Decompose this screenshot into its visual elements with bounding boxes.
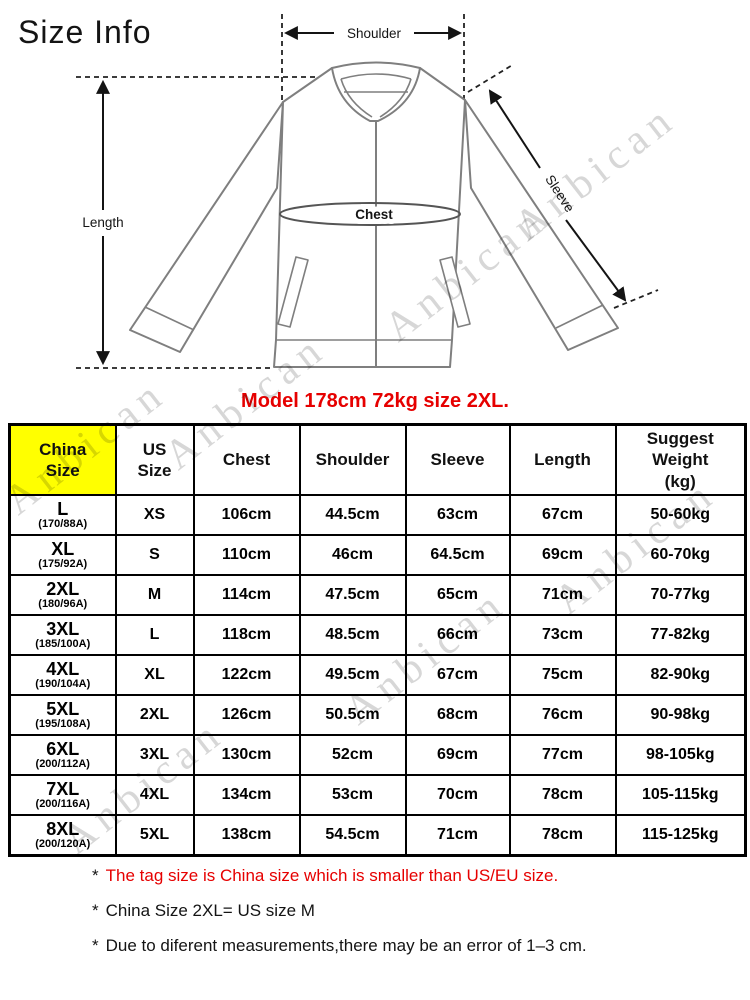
cell-weight: 82-90kg <box>616 655 746 695</box>
cell-weight: 60-70kg <box>616 535 746 575</box>
cell-shoulder: 46cm <box>300 535 406 575</box>
table-row: 6XL(200/112A) 3XL 130cm 52cm 69cm 77cm 9… <box>10 735 746 775</box>
cell-chest: 110cm <box>194 535 300 575</box>
cell-us-size: XS <box>116 495 194 535</box>
footnote-text: The tag size is China size which is smal… <box>106 866 559 885</box>
cell-china-size: 3XL(185/100A) <box>10 615 116 655</box>
size-table: China Size US Size Chest Shoulder Sleeve… <box>8 423 747 857</box>
cell-china-size: 2XL(180/96A) <box>10 575 116 615</box>
table-row: 8XL(200/120A) 5XL 138cm 54.5cm 71cm 78cm… <box>10 815 746 856</box>
footnote-marker: * <box>92 936 99 955</box>
cell-shoulder: 52cm <box>300 735 406 775</box>
china-size-value: 8XL <box>13 820 113 840</box>
footnote-marker: * <box>92 901 99 920</box>
china-size-value: 2XL <box>13 580 113 600</box>
table-row: L(170/88A) XS 106cm 44.5cm 63cm 67cm 50-… <box>10 495 746 535</box>
footnote-size-equivalence: *China Size 2XL= US size M <box>92 901 587 921</box>
cell-sleeve: 67cm <box>406 655 510 695</box>
cell-weight: 115-125kg <box>616 815 746 856</box>
header-chest: Chest <box>194 425 300 496</box>
cell-us-size: M <box>116 575 194 615</box>
cell-shoulder: 50.5cm <box>300 695 406 735</box>
cell-length: 71cm <box>510 575 616 615</box>
cell-sleeve: 68cm <box>406 695 510 735</box>
page-title: Size Info <box>18 14 152 51</box>
cell-sleeve: 64.5cm <box>406 535 510 575</box>
cell-china-size: 8XL(200/120A) <box>10 815 116 856</box>
cell-china-size: L(170/88A) <box>10 495 116 535</box>
header-sleeve: Sleeve <box>406 425 510 496</box>
china-size-value: XL <box>13 540 113 560</box>
china-size-value: 4XL <box>13 660 113 680</box>
cell-chest: 126cm <box>194 695 300 735</box>
china-size-spec: (195/108A) <box>13 718 113 730</box>
cell-sleeve: 66cm <box>406 615 510 655</box>
cell-sleeve: 71cm <box>406 815 510 856</box>
table-row: 7XL(200/116A) 4XL 134cm 53cm 70cm 78cm 1… <box>10 775 746 815</box>
length-measure-label: Length <box>82 215 123 230</box>
header-suggest-weight: Suggest Weight (kg) <box>616 425 746 496</box>
jacket-measurement-diagram: Shoulder Length Sleeve Chest <box>0 0 750 420</box>
cell-weight: 50-60kg <box>616 495 746 535</box>
cell-shoulder: 49.5cm <box>300 655 406 695</box>
cell-length: 76cm <box>510 695 616 735</box>
footnote-tag-size: *The tag size is China size which is sma… <box>92 866 587 886</box>
cell-shoulder: 47.5cm <box>300 575 406 615</box>
sleeve-measure-label: Sleeve <box>542 172 577 215</box>
cell-chest: 130cm <box>194 735 300 775</box>
china-size-value: 5XL <box>13 700 113 720</box>
china-size-spec: (200/112A) <box>13 758 113 770</box>
header-china-size: China Size <box>10 425 116 496</box>
cell-shoulder: 44.5cm <box>300 495 406 535</box>
cell-china-size: 7XL(200/116A) <box>10 775 116 815</box>
footnote-text: China Size 2XL= US size M <box>106 901 315 920</box>
cell-china-size: 6XL(200/112A) <box>10 735 116 775</box>
cell-shoulder: 54.5cm <box>300 815 406 856</box>
china-size-value: L <box>13 500 113 520</box>
header-shoulder: Shoulder <box>300 425 406 496</box>
cell-length: 73cm <box>510 615 616 655</box>
cell-us-size: XL <box>116 655 194 695</box>
cell-us-size: 2XL <box>116 695 194 735</box>
china-size-value: 3XL <box>13 620 113 640</box>
cell-china-size: 4XL(190/104A) <box>10 655 116 695</box>
cell-us-size: 5XL <box>116 815 194 856</box>
footnotes: *The tag size is China size which is sma… <box>92 866 587 956</box>
header-length: Length <box>510 425 616 496</box>
cell-chest: 138cm <box>194 815 300 856</box>
table-row: 2XL(180/96A) M 114cm 47.5cm 65cm 71cm 70… <box>10 575 746 615</box>
header-us-size: US Size <box>116 425 194 496</box>
china-size-spec: (190/104A) <box>13 678 113 690</box>
table-header-row: China Size US Size Chest Shoulder Sleeve… <box>10 425 746 496</box>
cell-us-size: 4XL <box>116 775 194 815</box>
china-size-spec: (175/92A) <box>13 558 113 570</box>
china-size-value: 6XL <box>13 740 113 760</box>
china-size-spec: (200/116A) <box>13 798 113 810</box>
footnote-measurement-error: *Due to diferent measurements,there may … <box>92 936 587 956</box>
cell-weight: 90-98kg <box>616 695 746 735</box>
cell-shoulder: 53cm <box>300 775 406 815</box>
cell-sleeve: 65cm <box>406 575 510 615</box>
table-row: XL(175/92A) S 110cm 46cm 64.5cm 69cm 60-… <box>10 535 746 575</box>
table-row: 5XL(195/108A) 2XL 126cm 50.5cm 68cm 76cm… <box>10 695 746 735</box>
cell-chest: 134cm <box>194 775 300 815</box>
cell-chest: 106cm <box>194 495 300 535</box>
cell-china-size: XL(175/92A) <box>10 535 116 575</box>
cell-chest: 114cm <box>194 575 300 615</box>
cell-length: 75cm <box>510 655 616 695</box>
footnote-text: Due to diferent measurements,there may b… <box>106 936 587 955</box>
shoulder-measure-label: Shoulder <box>347 26 402 41</box>
cell-weight: 98-105kg <box>616 735 746 775</box>
table-row: 4XL(190/104A) XL 122cm 49.5cm 67cm 75cm … <box>10 655 746 695</box>
cell-length: 67cm <box>510 495 616 535</box>
cell-chest: 118cm <box>194 615 300 655</box>
cell-weight: 105-115kg <box>616 775 746 815</box>
model-size-caption: Model 178cm 72kg size 2XL. <box>0 390 750 413</box>
cell-length: 69cm <box>510 535 616 575</box>
china-size-spec: (170/88A) <box>13 518 113 530</box>
cell-us-size: L <box>116 615 194 655</box>
cell-weight: 70-77kg <box>616 575 746 615</box>
footnote-marker: * <box>92 866 99 885</box>
cell-length: 78cm <box>510 815 616 856</box>
cell-weight: 77-82kg <box>616 615 746 655</box>
cell-sleeve: 63cm <box>406 495 510 535</box>
cell-us-size: S <box>116 535 194 575</box>
cell-chest: 122cm <box>194 655 300 695</box>
china-size-spec: (200/120A) <box>13 838 113 850</box>
china-size-value: 7XL <box>13 780 113 800</box>
chest-measure-label: Chest <box>355 207 393 222</box>
cell-china-size: 5XL(195/108A) <box>10 695 116 735</box>
cell-sleeve: 70cm <box>406 775 510 815</box>
cell-us-size: 3XL <box>116 735 194 775</box>
china-size-spec: (180/96A) <box>13 598 113 610</box>
cell-length: 77cm <box>510 735 616 775</box>
cell-length: 78cm <box>510 775 616 815</box>
table-row: 3XL(185/100A) L 118cm 48.5cm 66cm 73cm 7… <box>10 615 746 655</box>
china-size-spec: (185/100A) <box>13 638 113 650</box>
size-info-page: Anbican Anbican Anbican Anbican Anbican … <box>0 0 750 1000</box>
cell-shoulder: 48.5cm <box>300 615 406 655</box>
cell-sleeve: 69cm <box>406 735 510 775</box>
